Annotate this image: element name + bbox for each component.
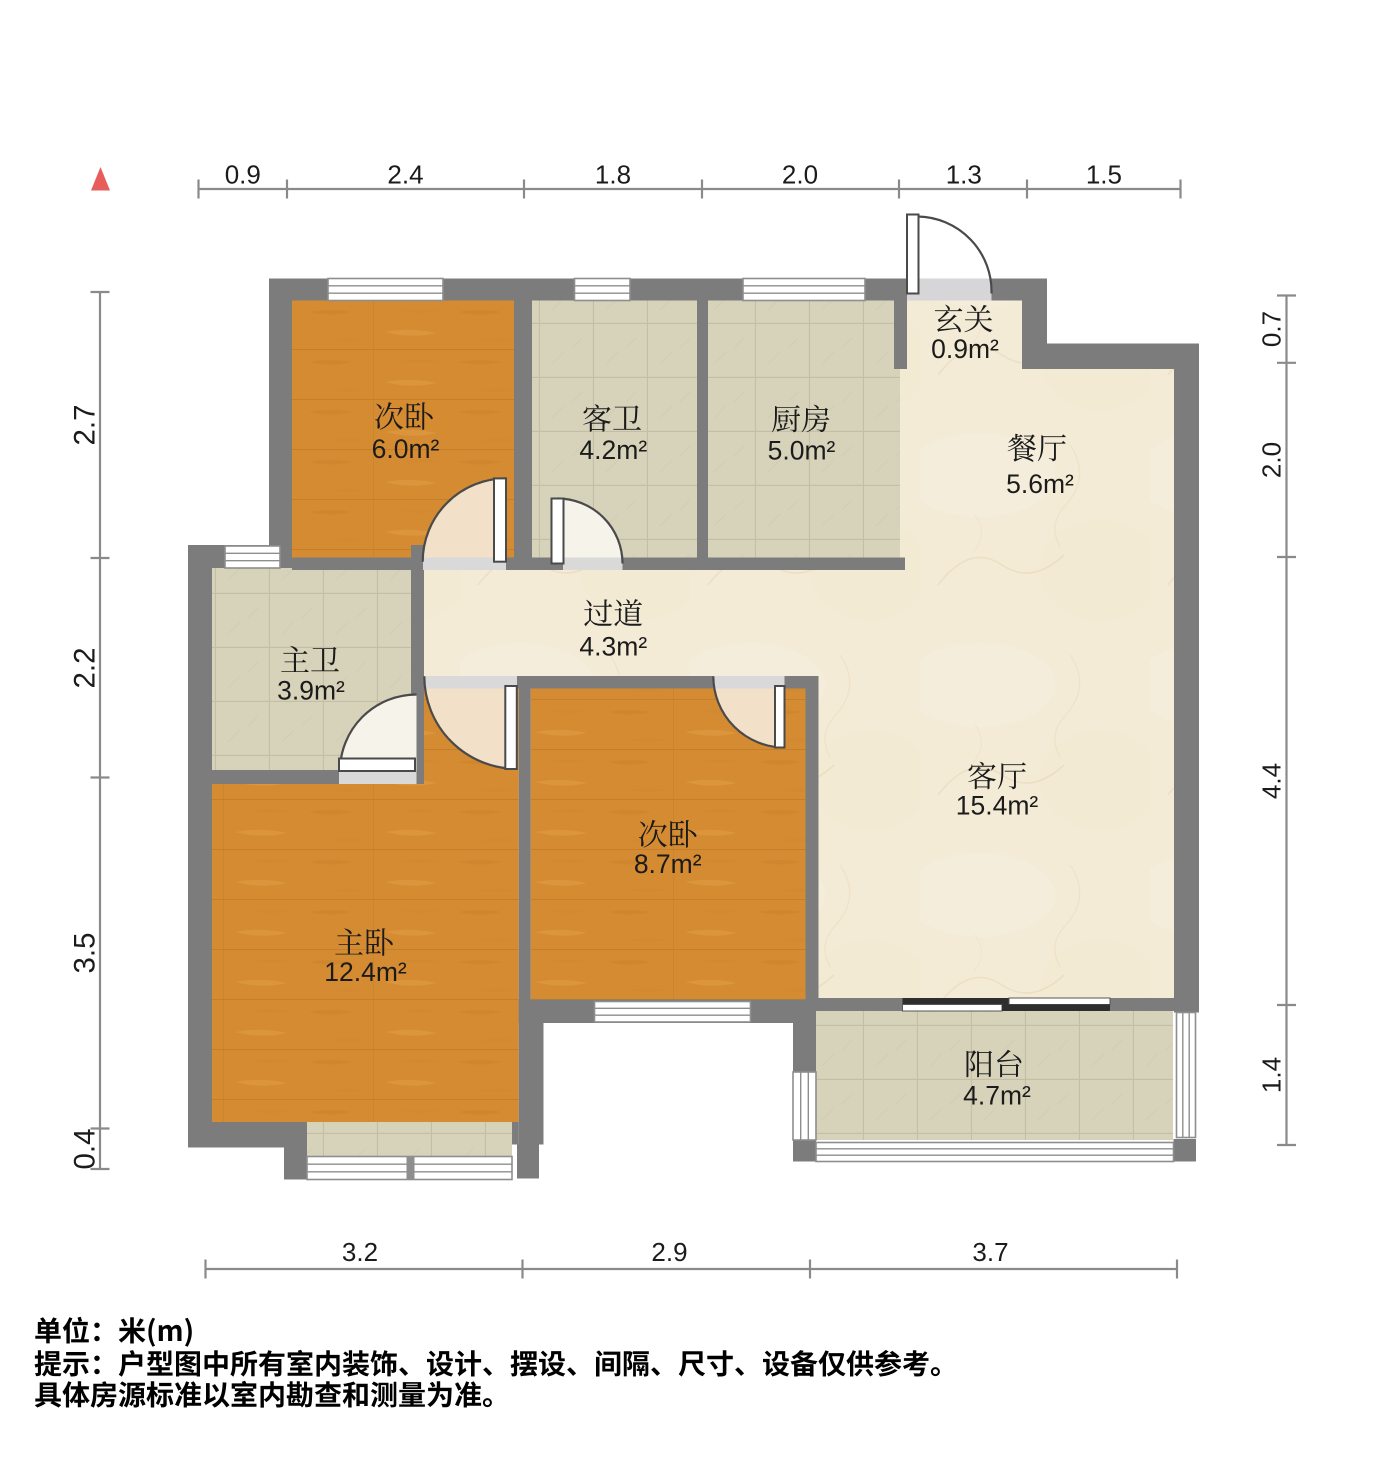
svg-text:2.2: 2.2	[69, 647, 102, 688]
svg-text:3.2: 3.2	[342, 1237, 378, 1267]
svg-text:3.9m²: 3.9m²	[277, 676, 345, 706]
svg-text:2.7: 2.7	[69, 404, 102, 445]
svg-text:6.0m²: 6.0m²	[372, 434, 440, 464]
svg-text:12.4m²: 12.4m²	[324, 957, 407, 987]
svg-text:3.5: 3.5	[69, 932, 102, 973]
svg-text:1.4: 1.4	[1257, 1057, 1287, 1093]
svg-text:1.8: 1.8	[595, 160, 631, 190]
svg-text:4.4: 4.4	[1257, 763, 1287, 799]
svg-text:15.4m²: 15.4m²	[956, 791, 1039, 821]
svg-text:0.9: 0.9	[225, 160, 261, 190]
svg-text:8.7m²: 8.7m²	[634, 849, 702, 879]
svg-text:0.4: 0.4	[69, 1128, 102, 1169]
svg-text:3.7: 3.7	[972, 1237, 1008, 1267]
svg-text:5.6m²: 5.6m²	[1006, 469, 1074, 499]
svg-text:5.0m²: 5.0m²	[768, 436, 836, 466]
svg-text:2.0: 2.0	[1257, 442, 1287, 478]
svg-text:4.3m²: 4.3m²	[579, 632, 647, 662]
svg-text:2.0: 2.0	[782, 160, 818, 190]
svg-text:0.9m²: 0.9m²	[931, 334, 999, 364]
svg-text:4.2m²: 4.2m²	[579, 435, 647, 465]
svg-text:4.7m²: 4.7m²	[963, 1081, 1031, 1111]
svg-text:2.4: 2.4	[387, 160, 423, 190]
svg-text:1.3: 1.3	[946, 160, 982, 190]
svg-text:1.5: 1.5	[1086, 160, 1122, 190]
svg-text:2.9: 2.9	[651, 1237, 687, 1267]
svg-text:0.7: 0.7	[1257, 311, 1287, 347]
